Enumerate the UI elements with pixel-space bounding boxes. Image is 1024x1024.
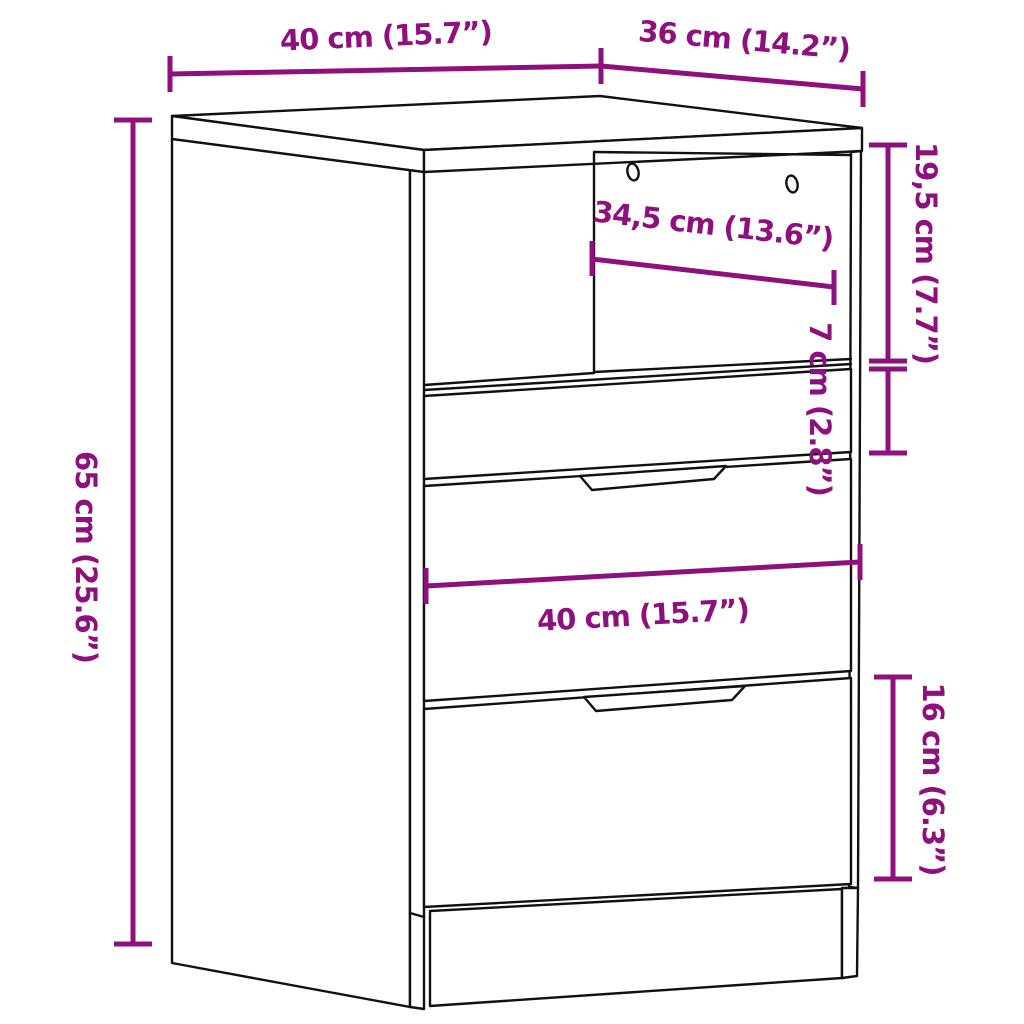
dim-compartment-height-label: 19,5 cm (7.7”) <box>909 142 943 364</box>
dim-bottom-drawer-height-label: 16 cm (6.3”) <box>916 683 950 876</box>
compartment-floor-left-edge <box>424 373 594 385</box>
dim-top-width: 40 cm (15.7”) <box>170 14 601 92</box>
dim-top-width-label: 40 cm (15.7”) <box>279 14 492 57</box>
dim-overall-height: 65 cm (25.6”) <box>69 120 152 944</box>
plinth-panel <box>430 889 842 1006</box>
dim-top-depth-label: 36 cm (14.2”) <box>637 14 851 66</box>
dim-top-depth: 36 cm (14.2”) <box>601 14 863 107</box>
dim-compartment-inner-width: 34,5 cm (13.6”) <box>591 194 835 305</box>
dim-compartment-height: 19,5 cm (7.7”) <box>869 142 943 364</box>
right-foot <box>842 888 858 978</box>
dim-overall-height-label: 65 cm (25.6”) <box>69 451 103 663</box>
drawer-front-bottom <box>424 678 851 907</box>
back-panel-hole <box>626 163 640 182</box>
side-panel <box>172 139 410 1007</box>
back-panel-hole <box>785 175 799 194</box>
open-compartment <box>424 152 851 390</box>
front-left-stile <box>410 158 424 1009</box>
cabinet-diagram-canvas: 40 cm (15.7”) 36 cm (14.2”) 65 cm (25.6”… <box>0 0 1024 1024</box>
dim-bottom-drawer-height: 16 cm (6.3”) <box>874 677 950 879</box>
dimension-diagram: 40 cm (15.7”) 36 cm (14.2”) 65 cm (25.6”… <box>0 0 1024 1024</box>
dim-small-drawer-height-label: 7 cm (2.8”) <box>803 322 837 496</box>
drawer-front-middle <box>424 459 851 701</box>
dim-compartment-inner-width-label: 34,5 cm (13.6”) <box>591 194 835 255</box>
